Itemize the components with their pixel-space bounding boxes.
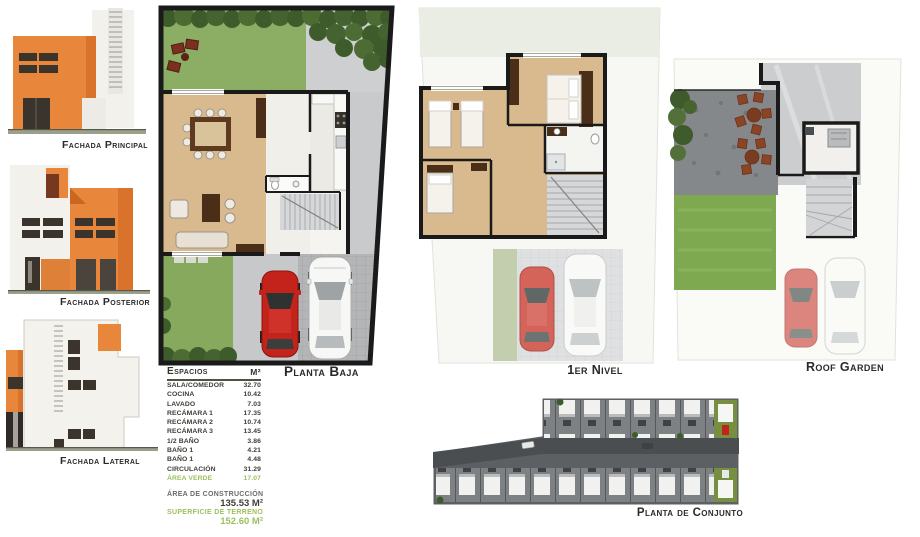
row-name: RECÁMARA 2 [167,418,213,427]
stairs [280,194,340,230]
row-value: 17.07 [243,474,261,483]
row-value: 32.70 [243,381,261,390]
table-row: CIRCULACIÓN31.29 [167,465,261,474]
mini-white-car [522,441,535,449]
espacios-table: Espacios M² SALA/COMEDOR32.70 COCINA10.4… [167,366,261,483]
espacios-unit: M² [250,367,261,377]
row-name: RECÁMARA 3 [167,427,213,436]
row-name: SALA/COMEDOR [167,381,224,390]
stairwell [806,177,855,237]
construccion-label: ÁREA DE CONSTRUCCIÓN [167,491,267,498]
fachada-lateral-drawing [6,312,158,454]
row-name: RECÁMARA 1 [167,409,213,418]
wardrobe [256,98,266,138]
ghost-parking [493,249,623,361]
living-dining-floor [161,92,266,254]
powder-room [266,176,310,192]
row-value: 17.35 [243,409,261,418]
row-name: LAVADO [167,400,195,409]
fachada-principal-label: Fachada Principal [45,139,165,151]
table-row: SALA/COMEDOR32.70 [167,381,261,390]
table-row: 1/2 BAÑO3.86 [167,437,261,446]
table-row: RECÁMARA 210.74 [167,418,261,427]
table-row: BAÑO 14.21 [167,446,261,455]
row-name: 1/2 BAÑO [167,437,199,446]
row-name: CIRCULACIÓN [167,465,216,474]
table-row-area-verde: ÁREA VERDE17.07 [167,474,261,483]
street [542,438,739,454]
wardrobe [509,59,519,105]
fachada-posterior-label: Fachada Posterior [45,296,165,308]
fachada-lateral-label: Fachada Lateral [40,455,160,467]
row-name: BAÑO 1 [167,455,193,464]
row-value: 10.42 [243,390,261,399]
table-row: LAVADO7.03 [167,400,261,409]
table-row: RECÁMARA 117.35 [167,409,261,418]
fachada-principal-drawing [8,8,148,136]
row-value: 13.45 [243,427,261,436]
utility-room [804,123,858,173]
row-value: 4.21 [247,446,261,455]
row-name: BAÑO 1 [167,446,193,455]
planta-baja-plan [158,4,396,366]
white-car [307,257,353,359]
row-value: 31.29 [243,465,261,474]
row-name: COCINA [167,390,194,399]
conjunto-label: Planta de Conjunto [605,507,775,519]
row-value: 4.48 [247,455,261,464]
primer-nivel-label: 1er Nivel [535,363,655,377]
construccion-value: 135.53 M² [167,498,267,509]
terreno-label: SUPERFICIE DE TERRENO [167,509,267,516]
door [25,257,40,291]
mini-red-car [722,425,729,435]
row-value: 7.03 [247,400,261,409]
lot-row-top [544,400,714,438]
highlight-lot-bottom [714,468,737,502]
roof-garden-label: Roof Garden [785,360,905,374]
row-name: ÁREA VERDE [167,474,212,483]
patio-doors [76,259,116,291]
lot-row-bottom [436,468,714,502]
conjunto-site-plan [430,392,744,510]
stairs [547,175,603,235]
roof-garden-plan [666,55,908,363]
area-totals: ÁREA DE CONSTRUCCIÓN 135.53 M² SUPERFICI… [167,491,267,527]
table-row: COCINA10.42 [167,390,261,399]
ghost-parking [785,258,865,354]
terreno-value: 152.60 M² [167,516,267,527]
double-bed [547,71,593,127]
table-row: BAÑO 14.48 [167,455,261,464]
presentation-sheet: Fachada Principal Fachada Posterior [0,0,920,537]
table-row: RECÁMARA 313.45 [167,427,261,436]
row-value: 10.74 [243,418,261,427]
red-car [259,271,301,357]
espacios-header: Espacios M² [167,366,261,381]
row-value: 3.86 [247,437,261,446]
primer-nivel-plan [413,5,663,365]
highlight-lot-top [714,400,737,438]
fachada-posterior-drawing [8,160,150,294]
planta-baja-label: Planta Baja [284,364,359,379]
espacios-title: Espacios [167,366,208,377]
